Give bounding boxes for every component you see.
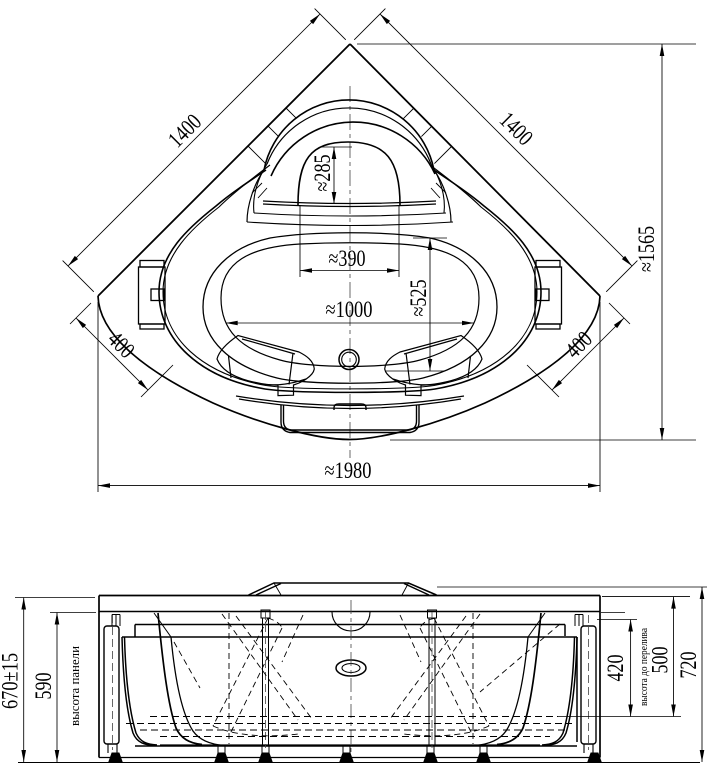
svg-text:≈390: ≈390: [329, 246, 366, 271]
svg-text:400: 400: [103, 326, 140, 363]
svg-text:590: 590: [31, 673, 56, 700]
svg-text:720: 720: [676, 652, 701, 679]
svg-text:≈1000: ≈1000: [326, 297, 373, 322]
svg-text:420: 420: [603, 655, 628, 682]
svg-text:400: 400: [560, 326, 597, 363]
svg-text:≈1565: ≈1565: [634, 226, 659, 272]
svg-text:≈525: ≈525: [406, 280, 431, 317]
svg-text:1400: 1400: [495, 107, 538, 150]
svg-text:≈1980: ≈1980: [325, 458, 372, 483]
svg-text:500: 500: [648, 647, 673, 674]
svg-text:высота панели: высота панели: [67, 646, 82, 726]
svg-text:≈285: ≈285: [310, 155, 335, 192]
svg-text:1400: 1400: [163, 109, 206, 152]
svg-text:670±15: 670±15: [0, 653, 23, 709]
